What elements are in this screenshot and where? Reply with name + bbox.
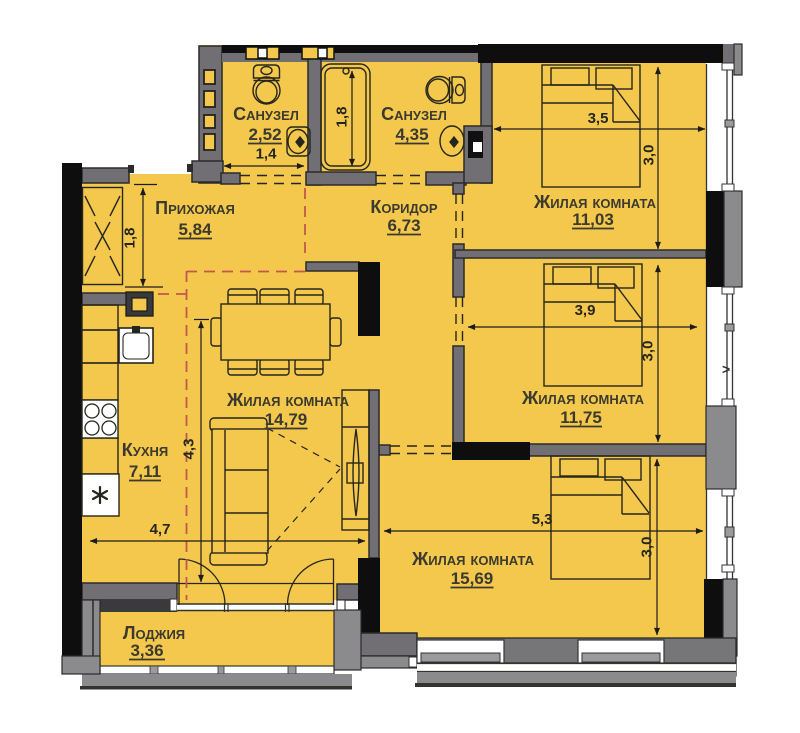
svg-text:4,3: 4,3 [181, 439, 198, 460]
svg-text:14,79: 14,79 [265, 410, 308, 429]
svg-text:Санузел: Санузел [381, 104, 447, 124]
svg-text:4,7: 4,7 [150, 521, 171, 538]
svg-text:3,9: 3,9 [575, 302, 596, 319]
svg-text:Жилая комната: Жилая комната [411, 549, 535, 569]
svg-text:>: > [722, 361, 730, 377]
svg-text:3,0: 3,0 [640, 341, 657, 362]
svg-text:11,75: 11,75 [560, 408, 602, 427]
svg-text:2,52: 2,52 [248, 125, 281, 144]
svg-text:3,0: 3,0 [639, 537, 656, 558]
svg-text:1,8: 1,8 [334, 107, 351, 128]
svg-text:Кухня: Кухня [122, 440, 168, 460]
svg-text:Санузел: Санузел [233, 104, 299, 124]
svg-text:3,0: 3,0 [641, 145, 658, 166]
svg-text:Коридор: Коридор [370, 197, 437, 217]
svg-text:Лоджия: Лоджия [123, 623, 185, 643]
svg-text:3,36: 3,36 [130, 641, 163, 660]
svg-text:5,84: 5,84 [178, 220, 212, 239]
svg-text:15,69: 15,69 [451, 569, 494, 588]
svg-text:7,11: 7,11 [129, 462, 161, 481]
svg-text:3,5: 3,5 [588, 110, 609, 127]
svg-text:1,4: 1,4 [256, 146, 278, 163]
svg-text:Жилая комната: Жилая комната [226, 390, 350, 410]
svg-text:Жилая комната: Жилая комната [521, 388, 645, 408]
svg-text:5,3: 5,3 [532, 511, 553, 528]
svg-text:Жилая комната: Жилая комната [533, 192, 657, 212]
svg-text:6,73: 6,73 [387, 216, 420, 235]
svg-text:1,8: 1,8 [122, 228, 139, 249]
svg-text:4,35: 4,35 [395, 125, 428, 144]
svg-text:11,03: 11,03 [572, 210, 614, 229]
svg-text:Прихожая: Прихожая [155, 198, 235, 218]
